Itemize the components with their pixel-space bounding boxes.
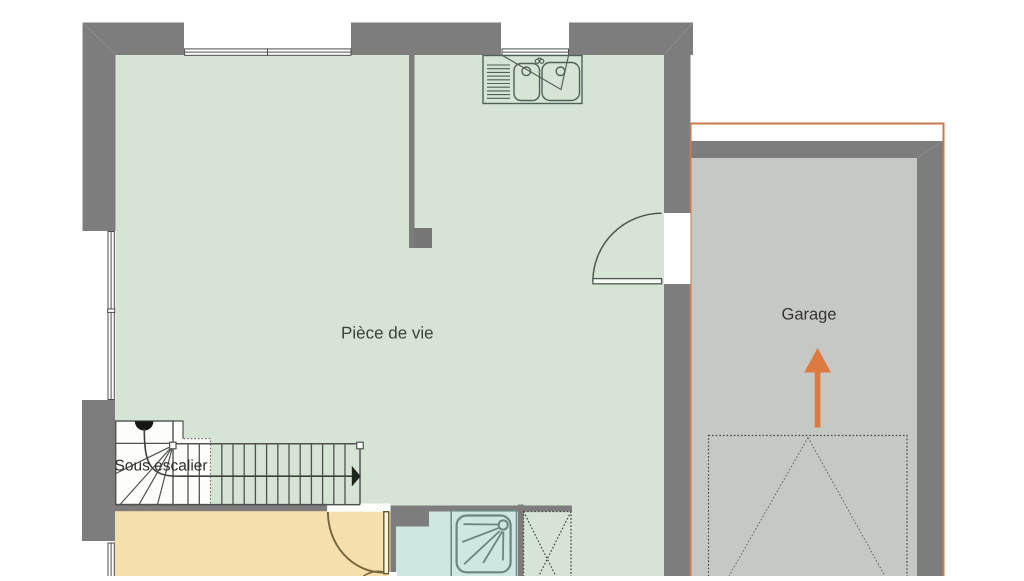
svg-text:Garage: Garage: [782, 306, 837, 324]
svg-text:Pièce de vie: Pièce de vie: [341, 323, 434, 342]
svg-text:Sous escalier: Sous escalier: [115, 457, 208, 474]
